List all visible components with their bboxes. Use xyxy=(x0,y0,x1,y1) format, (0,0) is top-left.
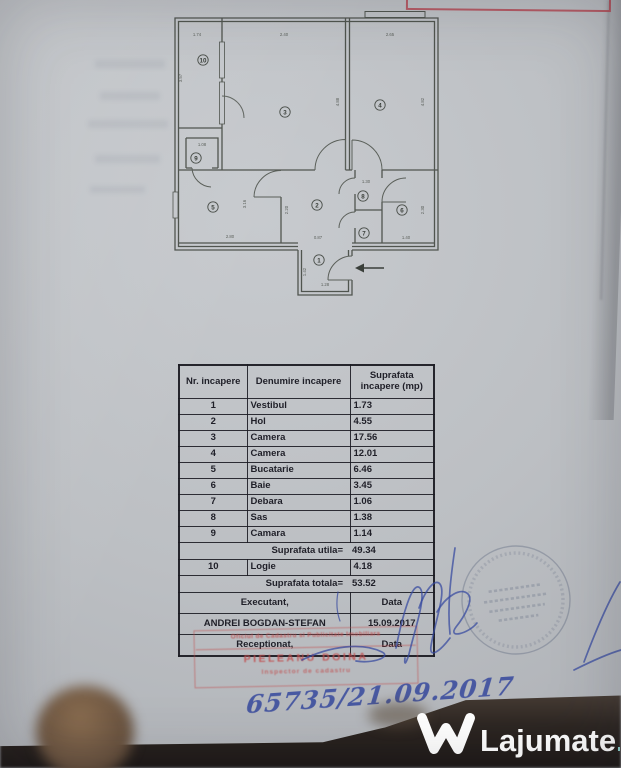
finger-blur xyxy=(36,686,134,768)
watermark-text: Lajumate.ro xyxy=(480,723,620,758)
photo-of-cadastral-document: 12345678910 1.742.402.653.574.884.821.08… xyxy=(0,0,621,768)
lajumate-logo-icon xyxy=(422,718,470,749)
lajumate-watermark: Lajumate.ro xyxy=(408,704,620,764)
ink-signatures xyxy=(0,0,621,768)
